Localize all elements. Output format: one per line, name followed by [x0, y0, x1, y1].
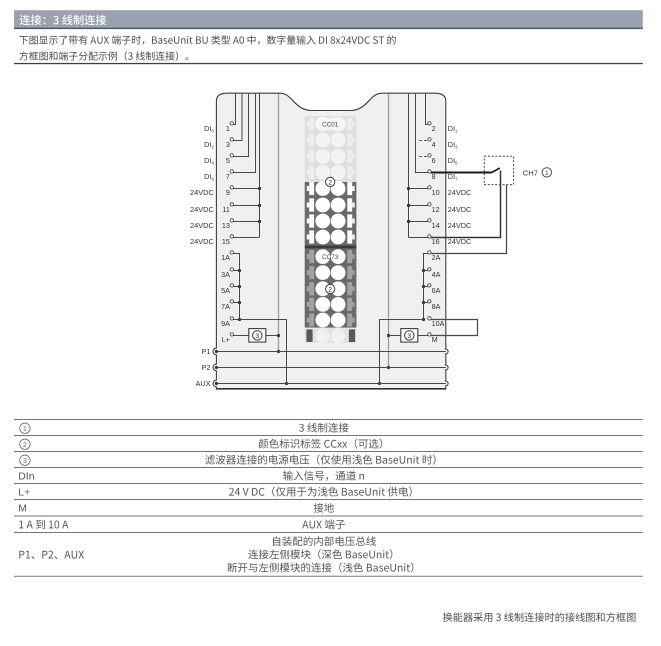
- svg-text:24VDC: 24VDC: [448, 188, 472, 197]
- svg-text:8A: 8A: [432, 302, 441, 311]
- svg-text:5: 5: [226, 156, 230, 165]
- svg-text:15: 15: [222, 237, 230, 246]
- svg-text:1: 1: [23, 426, 27, 433]
- svg-text:9: 9: [226, 188, 230, 197]
- svg-text:3: 3: [23, 458, 27, 465]
- svg-text:1: 1: [226, 124, 230, 133]
- svg-text:DIn: DIn: [18, 471, 34, 482]
- svg-text:24VDC: 24VDC: [190, 221, 214, 230]
- svg-text:CC73: CC73: [322, 254, 339, 261]
- svg-text:2: 2: [328, 180, 332, 187]
- svg-text:M: M: [432, 335, 438, 344]
- svg-text:24VDC: 24VDC: [190, 237, 214, 246]
- svg-text:CC01: CC01: [322, 121, 339, 128]
- svg-text:5A: 5A: [221, 286, 230, 295]
- svg-text:10A: 10A: [432, 319, 445, 328]
- svg-text:13: 13: [222, 221, 230, 230]
- svg-text:14: 14: [432, 221, 440, 230]
- svg-text:24VDC: 24VDC: [448, 205, 472, 214]
- svg-text:L+: L+: [18, 487, 30, 498]
- svg-text:L+: L+: [222, 335, 230, 344]
- svg-text:24VDC: 24VDC: [190, 188, 214, 197]
- svg-text:24VDC: 24VDC: [448, 221, 472, 230]
- svg-text:9A: 9A: [221, 319, 230, 328]
- svg-text:3: 3: [255, 333, 259, 340]
- svg-text:4A: 4A: [432, 270, 441, 279]
- svg-text:2: 2: [432, 124, 436, 133]
- svg-text:3A: 3A: [221, 270, 230, 279]
- svg-text:6: 6: [432, 156, 436, 165]
- svg-text:1: 1: [545, 170, 549, 177]
- svg-text:2: 2: [328, 287, 332, 294]
- svg-text:7A: 7A: [221, 302, 230, 311]
- svg-text:4: 4: [432, 140, 436, 149]
- svg-text:2A: 2A: [432, 253, 441, 262]
- svg-text:7: 7: [226, 172, 230, 181]
- svg-text:P2: P2: [202, 363, 211, 372]
- svg-text:3: 3: [407, 333, 411, 340]
- svg-text:12: 12: [432, 205, 440, 214]
- svg-text:16: 16: [432, 237, 440, 246]
- svg-text:3: 3: [226, 140, 230, 149]
- svg-text:24VDC: 24VDC: [448, 237, 472, 246]
- svg-text:11: 11: [222, 205, 229, 214]
- svg-text:P1: P1: [202, 347, 211, 356]
- svg-text:M: M: [18, 504, 27, 515]
- svg-text:CH7: CH7: [523, 168, 538, 177]
- svg-text:24VDC: 24VDC: [190, 205, 214, 214]
- svg-text:6A: 6A: [432, 286, 441, 295]
- svg-text:8: 8: [432, 172, 436, 181]
- svg-text:10: 10: [432, 188, 440, 197]
- svg-text:AUX: AUX: [195, 379, 210, 388]
- svg-text:1A: 1A: [221, 253, 230, 262]
- svg-text:2: 2: [23, 442, 27, 449]
